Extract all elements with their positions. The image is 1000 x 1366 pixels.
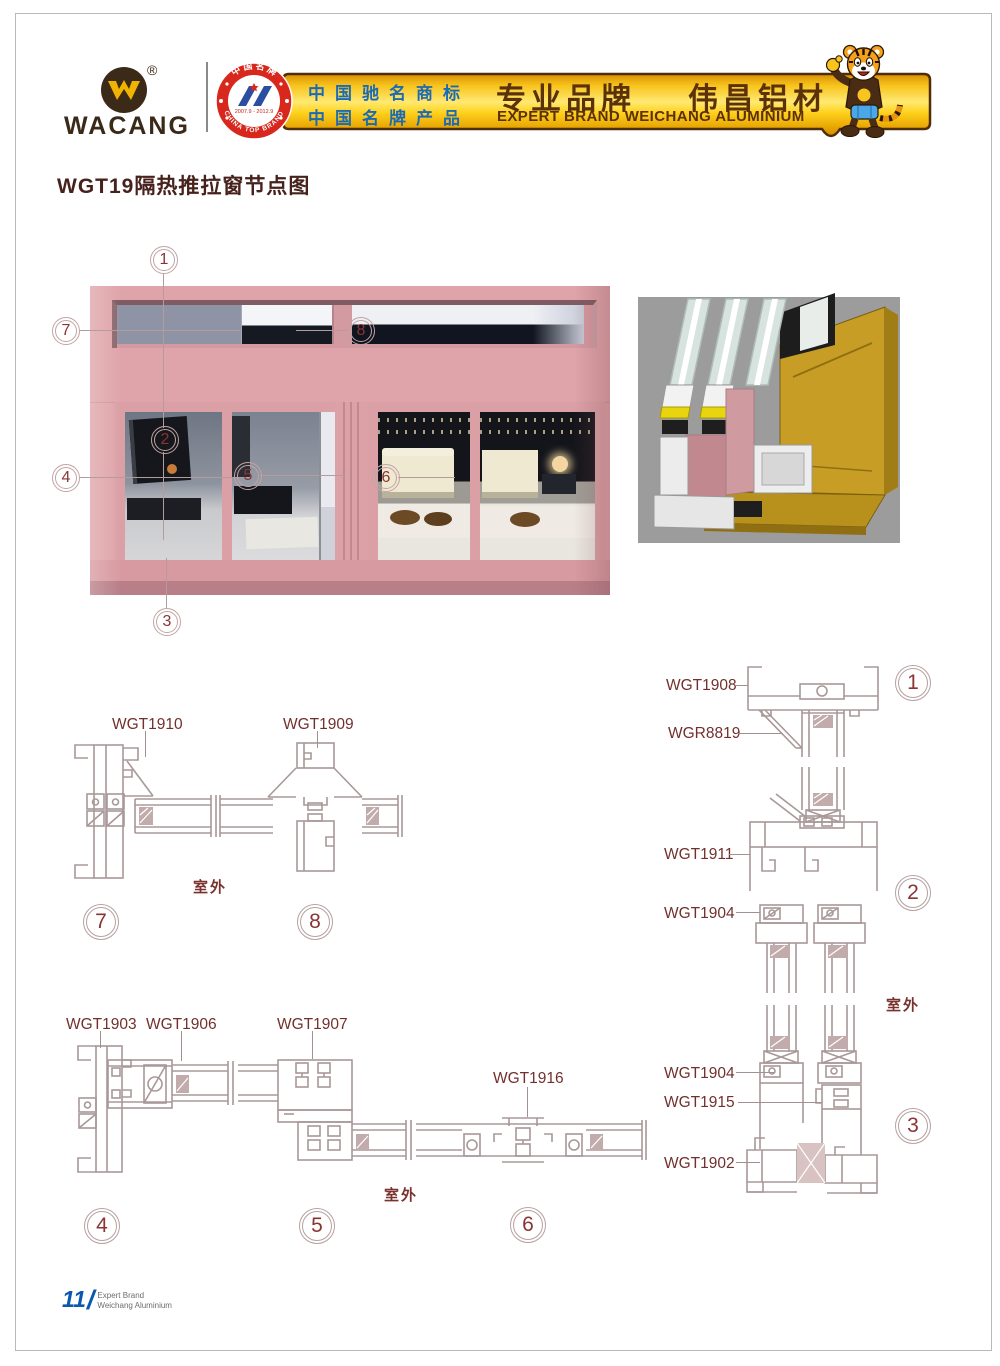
elevation-callout-8: 8 — [347, 317, 375, 345]
banner-line2: 中国名牌产品 — [308, 104, 470, 129]
elevation-sill — [90, 560, 610, 595]
elevation-mid-rail — [90, 348, 610, 403]
footer: 11 / Expert Brand Weichang Aluminium — [62, 1288, 172, 1312]
section-callout-4: 4 — [84, 1208, 120, 1244]
label-wgt1909: WGT1909 — [283, 716, 354, 734]
leader-wgt1902 — [736, 1162, 760, 1163]
section-callout-2: 2 — [895, 875, 931, 911]
label-wgt1904-bottom: WGT1904 — [664, 1065, 735, 1083]
label-wgt1903: WGT1903 — [66, 1016, 137, 1034]
outdoor-label-b: 室外 — [886, 994, 920, 1015]
transom-glass-right — [352, 305, 584, 344]
elevation-callout-1: 1 — [150, 246, 178, 274]
leader-wgt1907 — [312, 1031, 313, 1059]
outdoor-label-a: 室外 — [193, 876, 227, 897]
sash-2-glass — [232, 412, 345, 570]
center-mullion — [335, 402, 368, 560]
elevation-callout-7: 7 — [52, 317, 80, 345]
leader-5 — [260, 475, 345, 476]
section-drawing-4-5-6 — [50, 1038, 650, 1198]
section-callout-1: 1 — [895, 665, 931, 701]
label-wgt1916: WGT1916 — [493, 1070, 564, 1088]
leader-wgt1904-bottom — [736, 1072, 775, 1073]
label-wgt1911: WGT1911 — [664, 846, 734, 864]
wacang-w-logo — [100, 66, 150, 116]
label-wgt1904-top: WGT1904 — [664, 905, 735, 923]
tiger-mascot — [824, 42, 904, 140]
banner-subtitle: EXPERT BRAND WEICHANG ALUMINIUM — [497, 108, 805, 125]
label-wgt1902: WGT1902 — [664, 1155, 735, 1173]
svg-text:2007.9 - 2012.9: 2007.9 - 2012.9 — [235, 109, 274, 115]
section-callout-5: 5 — [299, 1208, 335, 1244]
leader-6 — [398, 477, 455, 478]
label-wgt1915: WGT1915 — [664, 1094, 735, 1112]
leader-wgt1904-top — [736, 912, 760, 913]
footer-slash: / — [87, 1288, 95, 1312]
leader-4 — [78, 477, 250, 478]
leader-wgt1916 — [527, 1087, 528, 1117]
elevation-callout-6: 6 — [372, 464, 400, 492]
label-wgr8819: WGR8819 — [668, 725, 740, 743]
sash-3-glass — [378, 412, 480, 570]
footer-text: Expert Brand Weichang Aluminium — [97, 1288, 172, 1311]
catalog-page: ® WACANG 中 国 名 牌 CHINA TOP BRAND 2007.9 … — [0, 0, 1000, 1366]
leader-wgt1911 — [729, 854, 750, 855]
leader-wgt1903 — [100, 1031, 101, 1048]
china-top-brand-badge: 中 国 名 牌 CHINA TOP BRAND 2007.9 - 2012.9 — [213, 60, 295, 142]
leader-wgt1910 — [145, 731, 146, 757]
header-divider — [206, 62, 208, 132]
outdoor-label-c: 室外 — [384, 1184, 418, 1205]
leader-3 — [166, 558, 167, 608]
label-wgt1910: WGT1910 — [112, 716, 183, 734]
window-profile-3d-render — [630, 285, 908, 555]
elevation-callout-5: 5 — [234, 462, 262, 490]
elevation-callout-3: 3 — [153, 608, 181, 636]
transom-glass-left — [117, 305, 332, 344]
sash-4 — [470, 402, 605, 580]
banner-line1: 中国驰名商标 — [308, 79, 470, 104]
leader-1 — [163, 272, 164, 428]
page-title: WGT19隔热推拉窗节点图 — [57, 170, 310, 200]
leader-wgt1915 — [738, 1102, 822, 1103]
label-wgt1908: WGT1908 — [666, 677, 737, 695]
sash-4-glass — [480, 412, 595, 570]
leader-wgt1909 — [317, 731, 318, 748]
section-callout-3: 3 — [895, 1108, 931, 1144]
page-number: 11 — [62, 1288, 86, 1311]
leader-wgt1908 — [735, 685, 748, 686]
section-callout-8: 8 — [297, 904, 333, 940]
brand-wordmark: WACANG — [61, 112, 193, 141]
section-callout-7: 7 — [83, 904, 119, 940]
leader-wgt1906 — [181, 1031, 182, 1061]
leader-wgr8819 — [737, 733, 783, 734]
leader-7 — [78, 330, 240, 331]
footer-line2: Weichang Aluminium — [97, 1301, 172, 1310]
leader-2 — [163, 452, 164, 540]
leader-8 — [296, 330, 347, 331]
elevation-callout-4: 4 — [52, 464, 80, 492]
footer-line1: Expert Brand — [97, 1291, 144, 1300]
section-callout-6: 6 — [510, 1207, 546, 1243]
elevation-callout-2: 2 — [151, 426, 179, 454]
registered-mark: ® — [147, 62, 157, 78]
